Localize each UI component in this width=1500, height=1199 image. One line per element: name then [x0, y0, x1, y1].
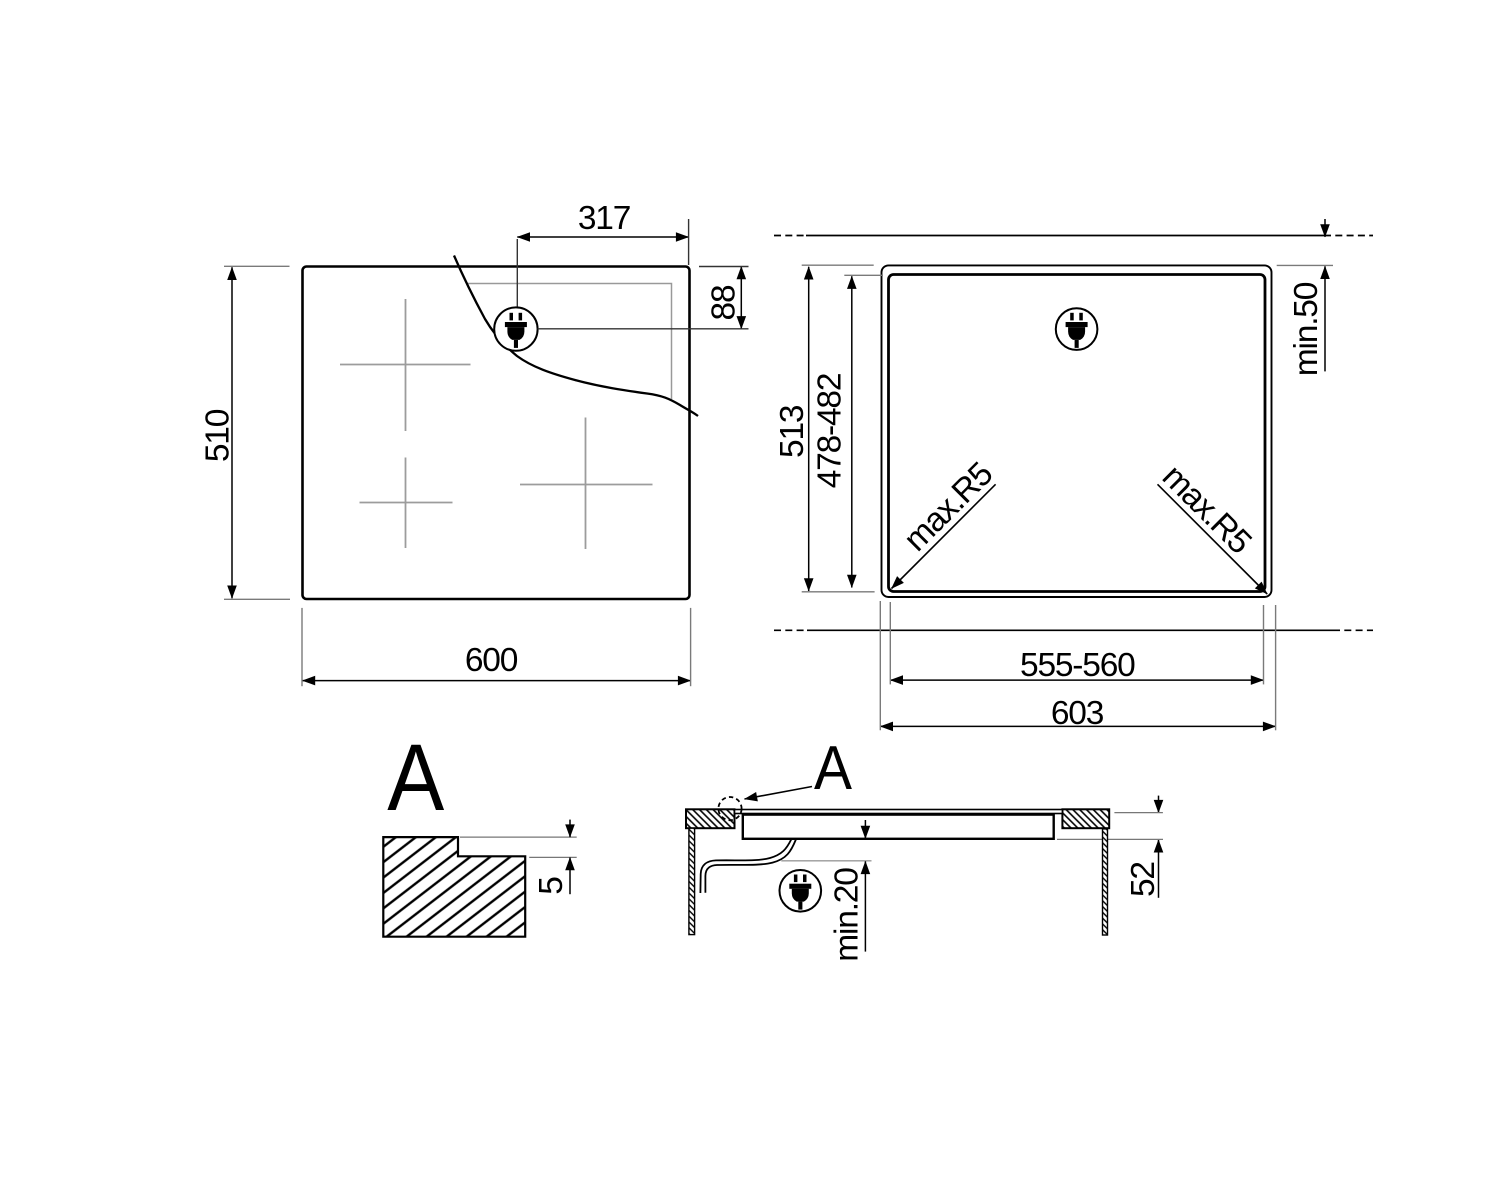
svg-text:513: 513	[774, 405, 811, 458]
svg-text:52: 52	[1125, 862, 1162, 897]
svg-text:min.20: min.20	[829, 868, 866, 962]
svg-text:478-482: 478-482	[812, 374, 849, 489]
svg-text:5: 5	[533, 877, 570, 895]
svg-text:555-560: 555-560	[1020, 647, 1135, 684]
svg-text:min.50: min.50	[1288, 282, 1325, 376]
svg-text:A: A	[814, 734, 853, 803]
svg-text:88: 88	[706, 285, 743, 320]
svg-text:510: 510	[200, 409, 237, 462]
svg-text:600: 600	[465, 642, 518, 679]
svg-text:A: A	[387, 725, 445, 831]
svg-text:603: 603	[1051, 695, 1104, 732]
svg-text:317: 317	[578, 200, 630, 237]
